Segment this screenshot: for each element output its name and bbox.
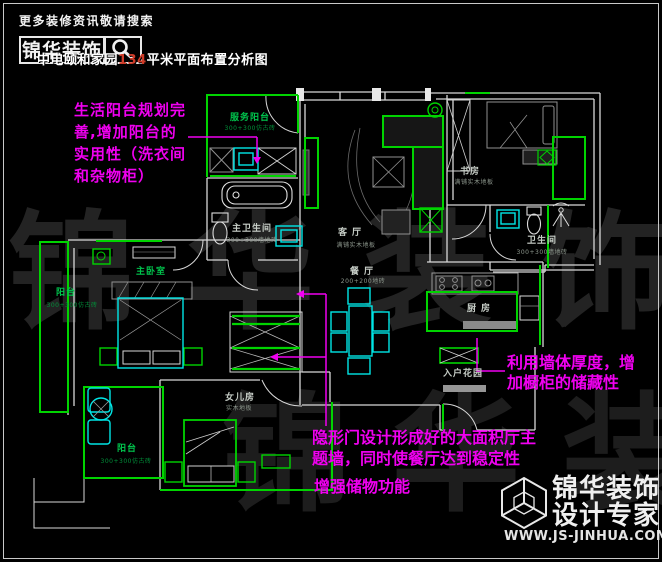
header-tagline: 更多装修资讯敬请搜索 [19, 12, 154, 29]
title-suffix: 平米平面布置分析图 [147, 53, 269, 68]
annotation-line: 隐形门设计形成好的大面积厅主 [312, 427, 536, 448]
room-sublabel: 满铺实木地板 [454, 180, 493, 186]
room-sublabel: 满铺实木地板 [336, 243, 375, 249]
jinhua-cube-logo [497, 474, 551, 536]
room-sublabel: 300+300仿古砖 [225, 126, 276, 132]
room-label-entry-garden: 入户花园 [443, 370, 483, 379]
footer-brand-line2: 设计专家 [552, 503, 660, 530]
room-label-balcony-bottom: 阳台 [117, 445, 137, 454]
poster-root: 锦华装饰 锦华装饰 [0, 0, 662, 562]
bathtub-icon [222, 182, 292, 208]
room-label-master-bedroom: 主卧室 [136, 268, 166, 277]
footer-brand-text: 锦华装饰 设计专家 [552, 476, 660, 530]
annotation-storage: 增强储物功能 [314, 473, 410, 497]
room-sublabel: 300+300墙地砖 [227, 238, 278, 244]
room-label-bathroom: 卫生间 [527, 237, 557, 246]
annotation-line: 题墙，同时使餐厅达到稳定性 [312, 448, 536, 469]
annotation-wall-cabinet: 利用墙体厚度，增 加橱柜的储藏性 [507, 353, 635, 393]
room-sublabel: 300+300墙地砖 [517, 250, 568, 256]
room-label-service-balcony: 服务阳台 [230, 114, 270, 123]
room-sublabel: 300+300仿古砖 [47, 303, 98, 309]
room-sublabel: 300+300仿古砖 [101, 459, 152, 465]
room-label-balcony-left: 阳台 [56, 289, 76, 298]
title-area-number: 134 [118, 53, 147, 68]
shower-icon [553, 203, 569, 227]
room-label-kitchen: 厨房 [467, 305, 495, 314]
room-sublabel: 实木地板 [226, 406, 252, 412]
room-label-master-bath: 主卫生间 [232, 225, 272, 234]
annotation-line: 和杂物柜） [74, 165, 186, 187]
footer-url: WWW.JS-JINHUA.COM [504, 529, 662, 544]
room-label-living-room: 客厅 [338, 229, 366, 238]
annotation-line: 利用墙体厚度，增 [507, 353, 635, 373]
annotation-line: 加橱柜的储藏性 [507, 373, 635, 393]
room-label-study: 书房 [460, 168, 480, 177]
room-sublabel: 200+200地砖 [341, 279, 385, 285]
room-label-daughter-room: 女儿房 [225, 394, 255, 403]
annotation-line: 生活阳台规划完 [74, 99, 186, 121]
annotation-line: 善,增加阳台的 [74, 121, 186, 143]
annotation-line: 实用性（洗衣间 [74, 143, 186, 165]
annotation-left-balcony: 生活阳台规划完 善,增加阳台的 实用性（洗衣间 和杂物柜） [74, 99, 186, 187]
annotation-hidden-door: 隐形门设计形成好的大面积厅主 题墙，同时使餐厅达到稳定性 [312, 427, 536, 469]
footer-brand-line1: 锦华装饰 [552, 476, 660, 503]
room-label-dining-room: 餐厅 [350, 268, 378, 277]
title-prefix: 中电颐和家园 [37, 53, 118, 68]
page-title: 中电颐和家园134平米平面布置分析图 [37, 49, 268, 68]
